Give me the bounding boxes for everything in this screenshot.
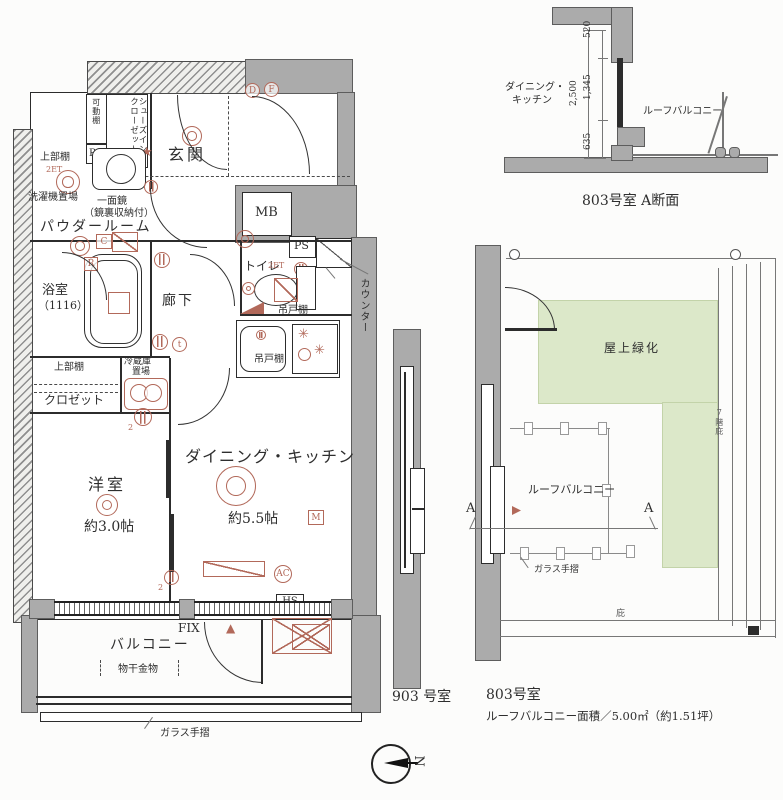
wall-left-hatched (14, 130, 32, 622)
closet-label: クロゼット (44, 394, 104, 407)
unit903-caption: 903 号室 (392, 690, 451, 705)
roof-plank-line-2 (746, 264, 747, 628)
fridge-icon-circle-2 (144, 384, 162, 402)
section-balcony-deck (632, 154, 778, 156)
badge-d-text: D (249, 86, 256, 96)
badge-ac-text: AC (276, 569, 289, 579)
mirror-label-1: 一面鏡 (97, 196, 127, 207)
partition-genkan-left (150, 93, 152, 189)
service-box-inner (292, 624, 330, 650)
section-mark-a-right: A (644, 502, 653, 516)
roof-boundary-bottom-1 (500, 620, 776, 621)
section-roof-balcony-label: ルーフバルコニー (643, 106, 722, 117)
badge-m-text: M (311, 513, 320, 523)
roof-plank-edge (718, 268, 719, 620)
floorplan-sheet: MB PS カウンター 可動棚 PS シューズイン クローゼット 玄関 ★ D (0, 0, 783, 800)
western-room-size: 約3.0帖 (84, 520, 134, 535)
roof-caption-area: ルーフバルコニー面積／5.00㎡（約1.51坪） (486, 710, 720, 723)
drying-post-2 (178, 660, 179, 676)
eaves-label: 庇 (616, 610, 625, 620)
wall-top-hatched (88, 62, 246, 93)
section-cut-line (470, 528, 658, 529)
sliding-door-panel-2 (170, 514, 174, 572)
balcony-door-arc (204, 622, 263, 683)
badge-ac: AC (274, 565, 292, 583)
wall-window-right (332, 600, 352, 618)
roof-boundary-bottom-2 (500, 636, 776, 637)
badge-c: C (96, 234, 112, 249)
roof-side-note: 7階庇 (714, 408, 723, 436)
dim-tick-4 (584, 158, 606, 159)
fence-post-7 (592, 547, 601, 560)
exhaust-fan-wall-icon (164, 570, 179, 585)
toilet-panel (274, 278, 298, 302)
hanging-cupboard-label-2: 吊戸棚 (254, 354, 284, 365)
mirror-label-2: （鏡裏収納付） (84, 208, 154, 219)
shower-unit-icon (108, 292, 130, 314)
roof-door-leaf (505, 328, 557, 331)
balcony-label: バルコニー (110, 638, 190, 653)
entry-dashed-line (228, 96, 229, 176)
ceiling-light-dk-icon (216, 466, 256, 506)
section-wall-upper (612, 8, 632, 62)
dk-label: ダイニング・キッチン (185, 448, 355, 466)
dim-1345: 1,345 (584, 74, 594, 100)
green-roof-label: 屋上緑化 (604, 342, 660, 355)
section-caption: 803号室 A断面 (582, 194, 679, 209)
ceiling-light-toilet-icon (242, 282, 255, 295)
green-roof-leg (662, 402, 718, 568)
badge-f: F (264, 82, 279, 97)
dim-tick-3 (598, 120, 608, 121)
roof-glass-rail-label: ガラス手摺 (534, 566, 579, 576)
section-wall-lower (612, 146, 632, 160)
wall-entry-right (338, 93, 354, 185)
section-window (617, 58, 623, 130)
unit903-window-tab (410, 468, 425, 554)
exhaust-fan-dk-icon (134, 408, 152, 426)
fence-post-2 (560, 422, 569, 435)
window-dk (194, 601, 332, 616)
hanging-cupboard-label-1: 吊戸棚 (278, 305, 308, 316)
wall-balcony-left (22, 616, 37, 712)
ceiling-light-west-icon (96, 494, 118, 516)
dim-520: 520 (584, 21, 594, 38)
unit903-mullion (412, 508, 424, 510)
pipe-foot-1 (716, 148, 725, 157)
dim-635: 635 (584, 133, 594, 150)
dim-line-segments (602, 30, 603, 158)
wall-top-right (246, 60, 352, 93)
balcony-rail-1 (36, 696, 352, 698)
closet-pipe-dashed-1 (34, 384, 118, 385)
badge-f-text: F (268, 85, 274, 95)
counter-label: カウンター (358, 278, 369, 333)
balcony-door-leaf (261, 620, 263, 684)
fan-count-1: 2 (128, 424, 133, 433)
glass-rail (40, 712, 362, 722)
exhaust-fan-bath-top-icon (154, 252, 170, 268)
multimedia-panel (203, 561, 265, 577)
burner-icon-2: ✳ (314, 344, 325, 358)
roof-plank-line-1 (732, 266, 733, 626)
washbasin-bowl (106, 154, 136, 184)
toilet-tank (296, 266, 316, 310)
upper-shelf-label-1: 上部棚 (40, 152, 70, 163)
roof-plank-line-3 (760, 262, 761, 630)
dim-2500: 2,500 (570, 80, 580, 106)
badge-t-text: t (178, 340, 182, 350)
drying-fixture-label: 物干金物 (118, 664, 158, 675)
roof-unit-window-tab (490, 466, 505, 554)
washer-label: 洗濯機置場 (28, 192, 78, 203)
roof-balcony-label: ルーフバルコニー (528, 484, 615, 496)
ceiling-light-hall-icon (236, 230, 254, 248)
western-room-label: 洋室 (88, 476, 126, 494)
movable-shelf-label: 可動棚 (91, 98, 100, 125)
burner-icon-3 (298, 348, 311, 361)
section-floor-slab (505, 158, 767, 172)
burner-icon-1: ✳ (298, 328, 309, 342)
dk-size: 約5.5帖 (228, 512, 278, 527)
roof-boundary-right (775, 258, 776, 638)
et-label-2: 2ET (268, 262, 284, 271)
roof-bottom-block (748, 626, 759, 635)
fence-post-1 (524, 422, 533, 435)
upper-shelf-label-2: 上部棚 (54, 362, 84, 373)
fridge-label-2: 置場 (132, 368, 150, 378)
switch-panel-powder (112, 232, 138, 252)
wall-window-mid (180, 600, 194, 618)
washer-pan-icon (56, 170, 80, 194)
unit903-window-line (404, 372, 406, 568)
balcony-rail-2 (36, 703, 352, 705)
wall-window-left (30, 600, 54, 618)
sliding-door-panel-1 (166, 440, 170, 498)
anchor-circle-left (509, 249, 520, 260)
badge-m: M (308, 510, 324, 525)
pipe-foot-2 (730, 148, 739, 157)
glass-rail-label: ガラス手摺 (160, 728, 210, 739)
anchor-circle-right (730, 249, 741, 260)
section-room-label-1: ダイニング・ (505, 82, 565, 93)
faucet-icon (256, 330, 266, 340)
partition-toilet-left (240, 242, 242, 316)
section-sill (618, 128, 644, 146)
compass-north-label: N (411, 755, 425, 766)
fan-count-2: 2 (158, 584, 163, 593)
exhaust-fan-bath-bottom-icon (152, 334, 168, 350)
fix-label: FIX (178, 622, 200, 635)
door-swing-marker (512, 506, 521, 515)
fence-post-6 (556, 547, 565, 560)
fence-post-8 (626, 545, 635, 558)
drying-post-1 (100, 660, 101, 676)
section-room-label-2: キッチン (512, 95, 552, 106)
badge-c-text: C (101, 237, 108, 247)
wall-balcony-right (352, 616, 380, 712)
roof-door-arc (505, 287, 555, 330)
bath-size-label: （1116） (38, 300, 88, 312)
fence-post-3 (598, 422, 607, 435)
roof-caption-unit: 803号室 (486, 688, 541, 703)
mb-label: MB (255, 206, 278, 220)
badge-t: t (172, 337, 187, 352)
partition-closet-fridge (120, 358, 122, 413)
window-west (54, 601, 180, 616)
dim-tick-2 (598, 58, 608, 59)
pipe-diagonal (707, 96, 727, 154)
section-mark-a-left: A (466, 502, 475, 516)
